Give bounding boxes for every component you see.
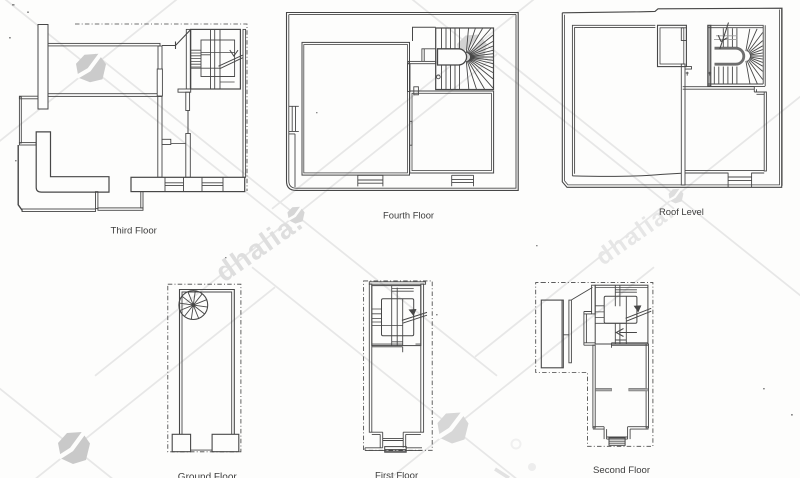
svg-text:Second Floor: Second Floor <box>593 465 651 476</box>
svg-text:Roof Level: Roof Level <box>659 206 704 217</box>
svg-text:Fourth Floor: Fourth Floor <box>383 209 434 220</box>
svg-text:dhalia.: dhalia. <box>210 206 309 288</box>
svg-text:Third Floor: Third Floor <box>111 226 158 237</box>
svg-text:Ground Floor: Ground Floor <box>178 472 238 478</box>
svg-text:First Floor: First Floor <box>375 470 419 478</box>
